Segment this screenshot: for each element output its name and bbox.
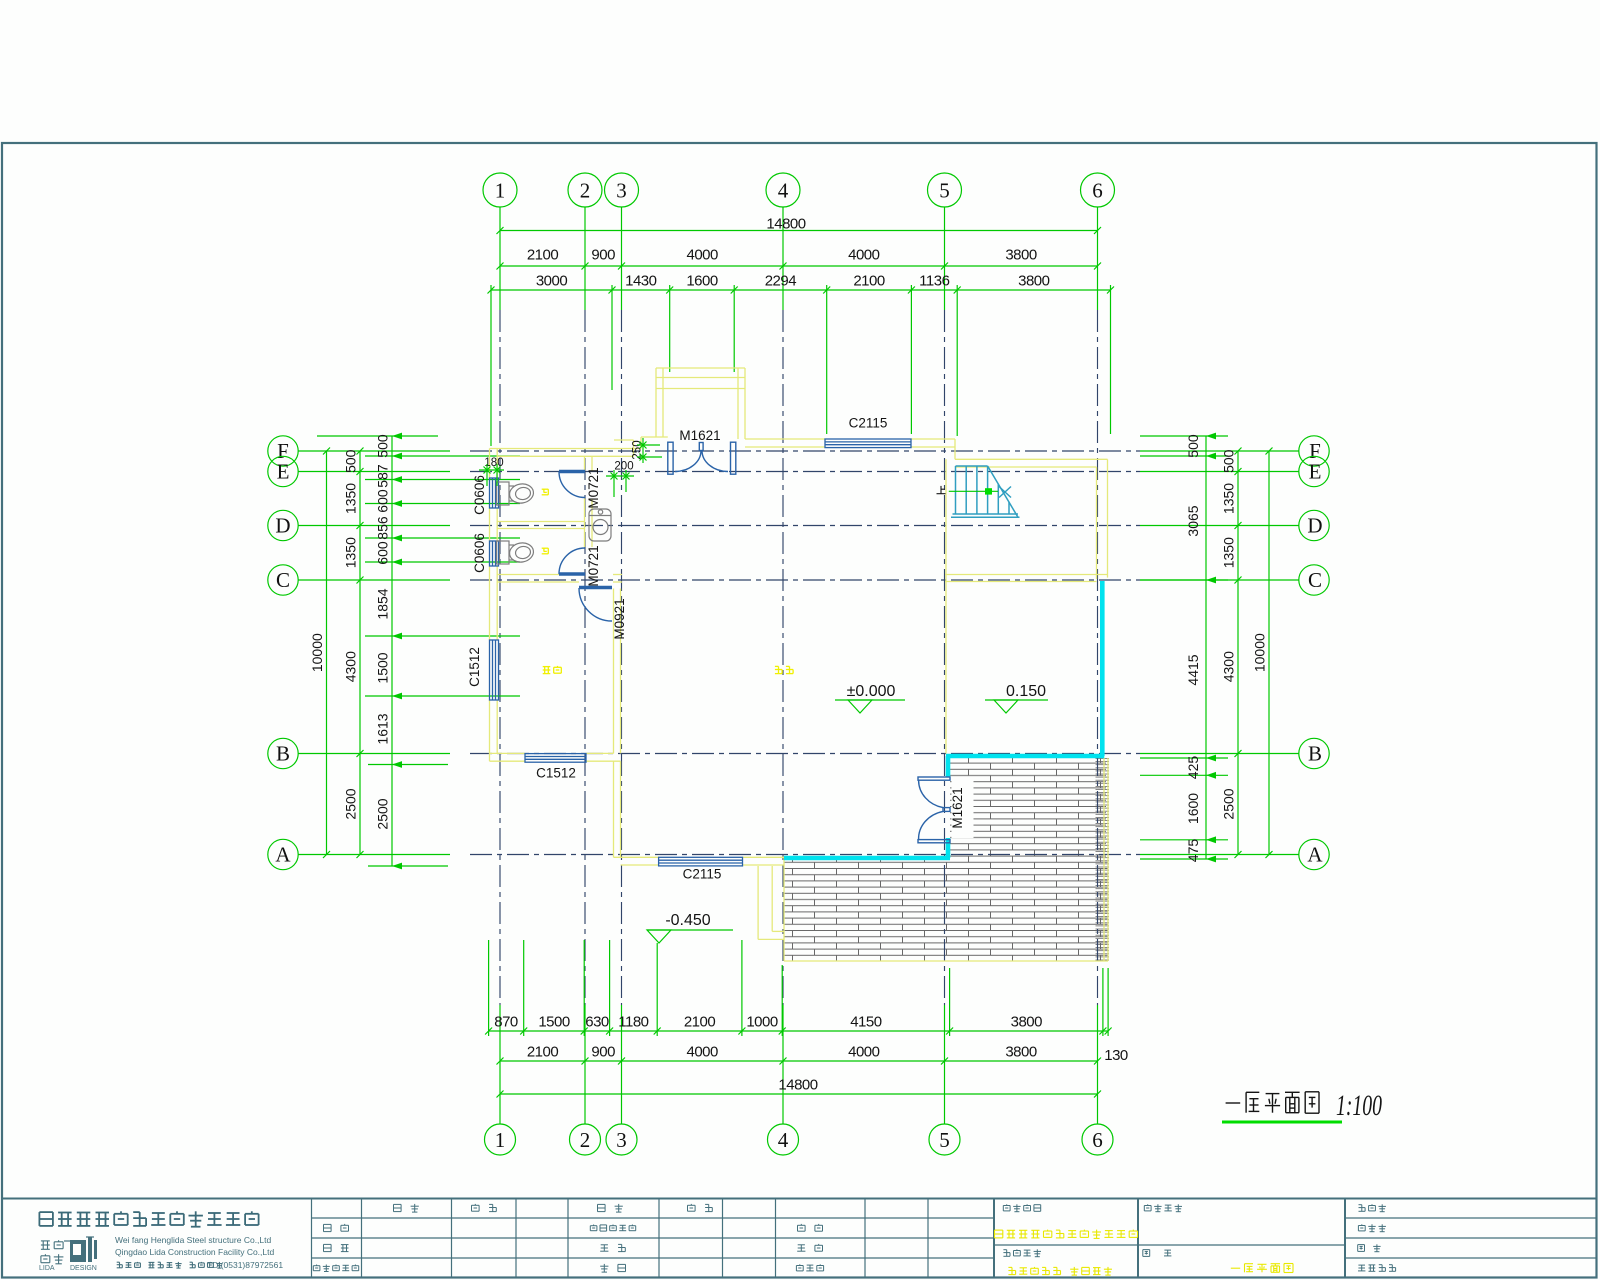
- svg-text:Wei fang Henglida Steel struct: Wei fang Henglida Steel structure Co.,Lt…: [115, 1235, 272, 1245]
- svg-text:587: 587: [375, 464, 391, 488]
- svg-text:4000: 4000: [687, 247, 719, 264]
- svg-text:B: B: [276, 742, 290, 766]
- svg-text:900: 900: [591, 1044, 615, 1061]
- svg-text:3800: 3800: [1005, 247, 1037, 264]
- svg-text:4: 4: [778, 1128, 789, 1152]
- svg-text:1600: 1600: [686, 273, 718, 290]
- svg-text:10000: 10000: [1252, 633, 1268, 672]
- svg-text:2294: 2294: [765, 273, 797, 290]
- svg-text:1854: 1854: [375, 588, 391, 619]
- svg-text:C: C: [276, 568, 290, 592]
- svg-text:1:100: 1:100: [1336, 1089, 1382, 1122]
- svg-text:500: 500: [1221, 449, 1237, 473]
- svg-text:2500: 2500: [343, 788, 359, 819]
- svg-text:500: 500: [1185, 434, 1201, 458]
- svg-text:1: 1: [495, 179, 506, 203]
- svg-text:6: 6: [1092, 179, 1103, 203]
- svg-text:E: E: [1309, 460, 1322, 484]
- svg-text:C2115: C2115: [849, 416, 888, 431]
- svg-text:C1512: C1512: [536, 766, 576, 781]
- svg-text:C2115: C2115: [683, 867, 722, 882]
- svg-text:2100: 2100: [684, 1014, 716, 1031]
- svg-text:630: 630: [585, 1014, 609, 1031]
- svg-text:14800: 14800: [766, 216, 805, 233]
- svg-text:500: 500: [375, 434, 391, 458]
- svg-text:3065: 3065: [1185, 505, 1201, 536]
- svg-text:2100: 2100: [853, 273, 885, 290]
- svg-text:200: 200: [614, 461, 633, 473]
- svg-text:M0921: M0921: [612, 598, 627, 639]
- svg-text:10000: 10000: [309, 633, 325, 672]
- svg-text:2500: 2500: [375, 798, 391, 829]
- svg-text:B: B: [1308, 742, 1322, 766]
- svg-text:600: 600: [375, 541, 391, 565]
- svg-text:2500: 2500: [1221, 788, 1237, 819]
- svg-text:C0606: C0606: [472, 533, 487, 573]
- svg-text:5: 5: [939, 1128, 950, 1152]
- svg-text:C0606: C0606: [472, 475, 487, 515]
- svg-text:4300: 4300: [343, 651, 359, 682]
- svg-text:4300: 4300: [1221, 651, 1237, 682]
- svg-text:4000: 4000: [848, 247, 880, 264]
- svg-text:E: E: [277, 460, 290, 484]
- svg-text:A: A: [275, 843, 291, 867]
- svg-text:1500: 1500: [375, 652, 391, 683]
- svg-text:3: 3: [616, 1128, 627, 1152]
- svg-text:1430: 1430: [625, 273, 657, 290]
- svg-text:2100: 2100: [527, 1044, 559, 1061]
- svg-text:M1621: M1621: [679, 428, 720, 443]
- svg-text:1180: 1180: [618, 1014, 648, 1031]
- svg-text:130: 130: [1104, 1047, 1128, 1064]
- svg-text:M0721: M0721: [586, 545, 601, 586]
- svg-text:C1512: C1512: [467, 647, 482, 687]
- svg-text:LIDA: LIDA: [39, 1265, 55, 1272]
- svg-text:856: 856: [375, 516, 391, 540]
- svg-text:1: 1: [495, 1128, 506, 1152]
- svg-text:M0721: M0721: [586, 467, 601, 508]
- svg-text:D: D: [1307, 514, 1322, 538]
- svg-text:1350: 1350: [343, 483, 359, 514]
- svg-text:14800: 14800: [778, 1077, 817, 1094]
- svg-text:4150: 4150: [850, 1014, 882, 1031]
- svg-text:4000: 4000: [687, 1044, 719, 1061]
- svg-text:4000: 4000: [848, 1044, 880, 1061]
- svg-text:Qingdao Lida Construction Faci: Qingdao Lida Construction Facility Co.,L…: [115, 1247, 274, 1257]
- svg-text:3800: 3800: [1018, 273, 1050, 290]
- svg-text:4415: 4415: [1185, 654, 1201, 685]
- svg-text:1350: 1350: [1221, 537, 1237, 568]
- svg-text:3000: 3000: [536, 273, 568, 290]
- svg-text:±0.000: ±0.000: [847, 683, 896, 700]
- svg-text:425: 425: [1185, 756, 1201, 780]
- svg-text:-0.450: -0.450: [665, 912, 710, 929]
- svg-text:5: 5: [939, 179, 950, 203]
- svg-text:1350: 1350: [343, 537, 359, 568]
- svg-text:A: A: [1307, 843, 1323, 867]
- svg-text:TD:(0531)87972561: TD:(0531)87972561: [207, 1260, 283, 1270]
- svg-text:M1621: M1621: [950, 787, 965, 828]
- svg-text:2: 2: [580, 179, 591, 203]
- svg-text:500: 500: [343, 449, 359, 473]
- svg-text:2100: 2100: [527, 247, 559, 264]
- svg-text:3: 3: [616, 179, 627, 203]
- svg-text:2: 2: [580, 1128, 591, 1152]
- svg-text:1600: 1600: [1185, 793, 1201, 824]
- svg-text:3800: 3800: [1011, 1014, 1043, 1031]
- svg-text:4: 4: [778, 179, 789, 203]
- svg-text:1136: 1136: [919, 273, 949, 290]
- svg-text:0.150: 0.150: [1006, 683, 1046, 700]
- svg-text:1613: 1613: [375, 713, 391, 744]
- svg-text:870: 870: [494, 1014, 518, 1031]
- svg-text:3800: 3800: [1005, 1044, 1037, 1061]
- svg-text:475: 475: [1185, 839, 1201, 863]
- svg-text:DESIGN: DESIGN: [70, 1265, 97, 1272]
- svg-text:600: 600: [375, 489, 391, 513]
- svg-text:6: 6: [1092, 1128, 1103, 1152]
- svg-text:1500: 1500: [538, 1014, 570, 1031]
- svg-text:D: D: [275, 514, 290, 538]
- svg-text:1350: 1350: [1221, 483, 1237, 514]
- svg-text:900: 900: [591, 247, 615, 264]
- svg-text:1000: 1000: [746, 1014, 778, 1031]
- svg-text:C: C: [1308, 568, 1322, 592]
